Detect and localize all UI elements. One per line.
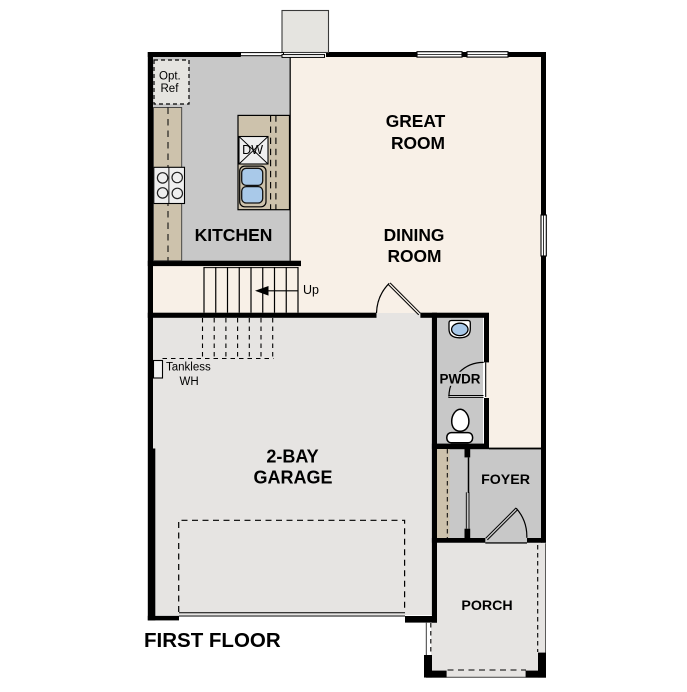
svg-text:Ref: Ref (161, 83, 180, 95)
svg-text:DINING: DINING (384, 225, 445, 245)
svg-text:GARAGE: GARAGE (253, 468, 332, 488)
svg-text:GREAT: GREAT (386, 111, 446, 131)
svg-text:2-BAY: 2-BAY (266, 447, 318, 467)
svg-text:ROOM: ROOM (387, 246, 441, 266)
svg-text:Tankless: Tankless (166, 362, 211, 374)
svg-text:Up: Up (303, 283, 319, 297)
svg-text:WH: WH (180, 376, 199, 388)
svg-text:KITCHEN: KITCHEN (195, 225, 273, 245)
svg-text:Opt.: Opt. (159, 71, 181, 83)
svg-text:DW: DW (242, 143, 263, 157)
svg-text:PORCH: PORCH (461, 598, 512, 614)
svg-text:FIRST FLOOR: FIRST FLOOR (144, 629, 281, 652)
svg-text:FOYER: FOYER (481, 472, 530, 488)
svg-text:ROOM: ROOM (391, 133, 445, 153)
svg-text:PWDR: PWDR (440, 372, 481, 387)
